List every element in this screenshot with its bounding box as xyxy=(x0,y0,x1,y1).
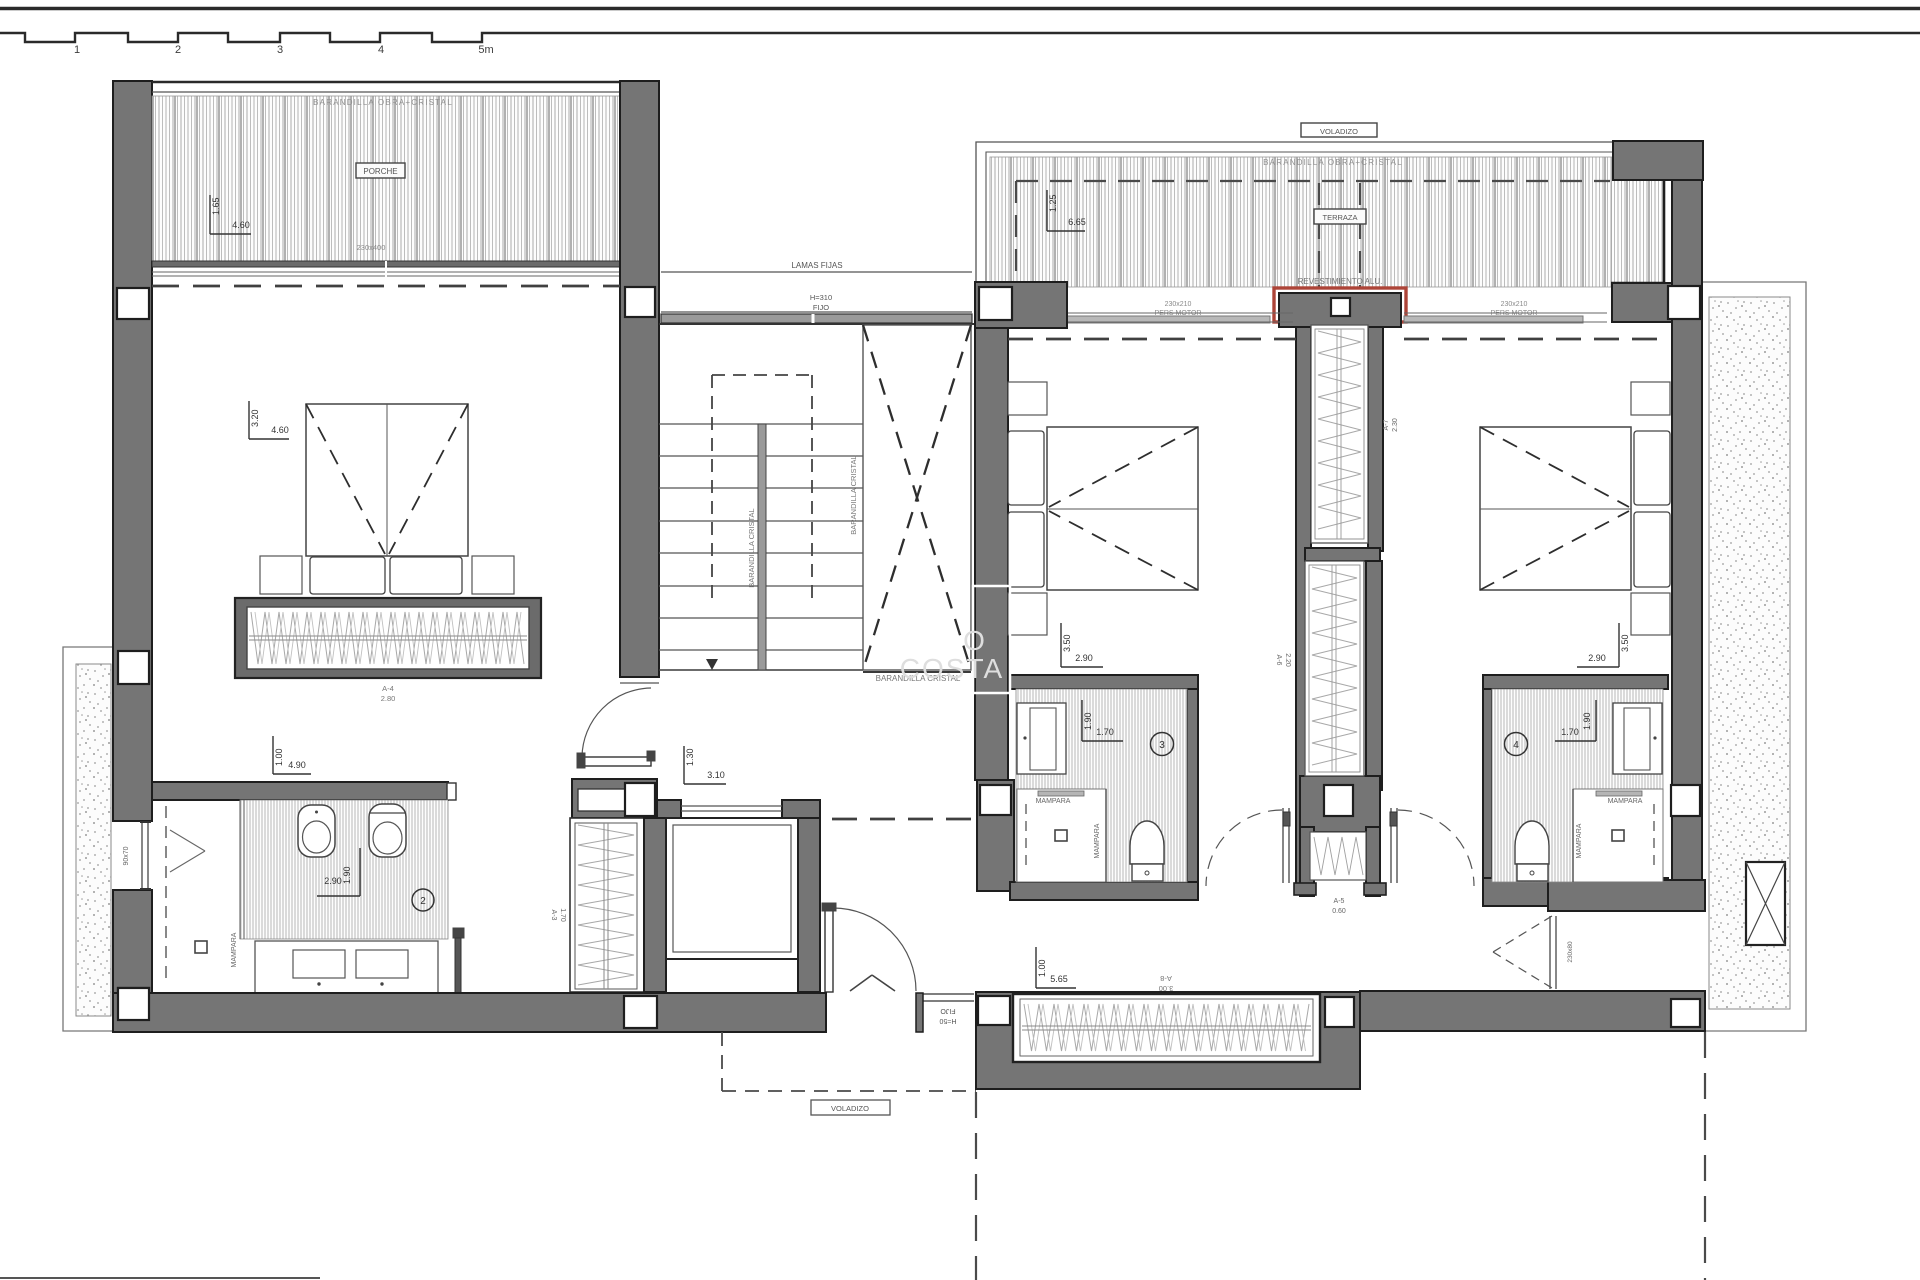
svg-text:BARANDILLA CRISTAL: BARANDILLA CRISTAL xyxy=(747,508,756,587)
svg-text:6.65: 6.65 xyxy=(1068,217,1086,227)
svg-text:3.50: 3.50 xyxy=(1062,634,1072,652)
svg-text:BARANDILLA OBRA+CRISTAL: BARANDILLA OBRA+CRISTAL xyxy=(1263,158,1403,167)
svg-text:3: 3 xyxy=(277,44,283,56)
svg-text:MAMPARA: MAMPARA xyxy=(1036,798,1071,805)
svg-text:COSTA: COSTA xyxy=(900,653,1004,684)
svg-text:A-7: A-7 xyxy=(1383,419,1390,430)
svg-text:4.90: 4.90 xyxy=(288,760,306,770)
svg-text:4.60: 4.60 xyxy=(232,220,250,230)
svg-text:1.70: 1.70 xyxy=(559,908,566,922)
svg-text:A-4: A-4 xyxy=(382,684,394,693)
svg-text:2.90: 2.90 xyxy=(1075,653,1093,663)
svg-text:A-3: A-3 xyxy=(550,910,557,921)
svg-text:A-5: A-5 xyxy=(1334,898,1345,905)
svg-text:TERRAZA: TERRAZA xyxy=(1322,213,1357,222)
svg-text:PORCHE: PORCHE xyxy=(363,167,397,176)
svg-text:0.60: 0.60 xyxy=(1332,908,1346,915)
svg-text:90x70: 90x70 xyxy=(123,846,130,865)
svg-text:230x210: 230x210 xyxy=(1501,301,1528,308)
svg-text:H=310: H=310 xyxy=(810,293,832,302)
svg-text:BARANDILLA OBRA+CRISTAL: BARANDILLA OBRA+CRISTAL xyxy=(313,98,453,107)
svg-text:VOLADIZO: VOLADIZO xyxy=(1320,127,1358,136)
svg-text:3.10: 3.10 xyxy=(707,770,725,780)
svg-text:1.90: 1.90 xyxy=(1582,712,1592,730)
svg-text:MAMPARA: MAMPARA xyxy=(1608,798,1643,805)
svg-text:MAMPARA: MAMPARA xyxy=(1094,823,1101,858)
svg-text:230x210: 230x210 xyxy=(1165,301,1192,308)
svg-text:1.25: 1.25 xyxy=(1048,194,1058,212)
svg-text:1.30: 1.30 xyxy=(685,748,695,766)
svg-text:2.30: 2.30 xyxy=(1392,418,1399,432)
svg-text:FIJO: FIJO xyxy=(940,1007,956,1014)
svg-text:1.70: 1.70 xyxy=(1561,727,1579,737)
svg-text:FIJO: FIJO xyxy=(813,303,829,312)
svg-text:A-8: A-8 xyxy=(1160,974,1172,983)
svg-text:5m: 5m xyxy=(478,44,493,56)
svg-text:H=50: H=50 xyxy=(939,1017,956,1024)
svg-text:2.90: 2.90 xyxy=(1588,653,1606,663)
svg-text:4: 4 xyxy=(1513,740,1519,751)
svg-text:1.00: 1.00 xyxy=(1037,959,1047,977)
svg-text:1.90: 1.90 xyxy=(342,866,352,884)
svg-text:2: 2 xyxy=(420,896,426,907)
svg-text:3.20: 3.20 xyxy=(250,409,260,427)
svg-text:MAMPARA: MAMPARA xyxy=(231,932,238,967)
svg-text:3.00: 3.00 xyxy=(1159,984,1174,993)
svg-text:1.65: 1.65 xyxy=(211,197,221,215)
svg-text:VOLADIZO: VOLADIZO xyxy=(831,1104,869,1113)
svg-text:1.70: 1.70 xyxy=(1096,727,1114,737)
svg-text:3.50: 3.50 xyxy=(1620,634,1630,652)
svg-text:BARANDILLA CRISTAL: BARANDILLA CRISTAL xyxy=(849,455,858,534)
svg-text:LAMAS FIJAS: LAMAS FIJAS xyxy=(791,261,842,270)
svg-text:4: 4 xyxy=(378,44,384,56)
svg-text:3: 3 xyxy=(1159,740,1165,751)
svg-text:230x400: 230x400 xyxy=(357,243,386,252)
svg-text:4.60: 4.60 xyxy=(271,425,289,435)
svg-text:5.65: 5.65 xyxy=(1050,974,1068,984)
svg-text:A-6: A-6 xyxy=(1275,655,1282,666)
svg-text:230x80: 230x80 xyxy=(1567,941,1574,963)
svg-text:MAMPARA: MAMPARA xyxy=(1576,823,1583,858)
svg-text:1.90: 1.90 xyxy=(1083,712,1093,730)
svg-text:1: 1 xyxy=(74,44,80,56)
svg-text:2.80: 2.80 xyxy=(381,694,396,703)
svg-text:2.90: 2.90 xyxy=(324,876,342,886)
svg-text:O: O xyxy=(963,625,985,656)
svg-text:1.00: 1.00 xyxy=(274,748,284,766)
svg-text:REVESTIMIENTO ALU.: REVESTIMIENTO ALU. xyxy=(1298,277,1383,286)
svg-text:2: 2 xyxy=(175,44,181,56)
svg-text:2.20: 2.20 xyxy=(1284,653,1291,667)
